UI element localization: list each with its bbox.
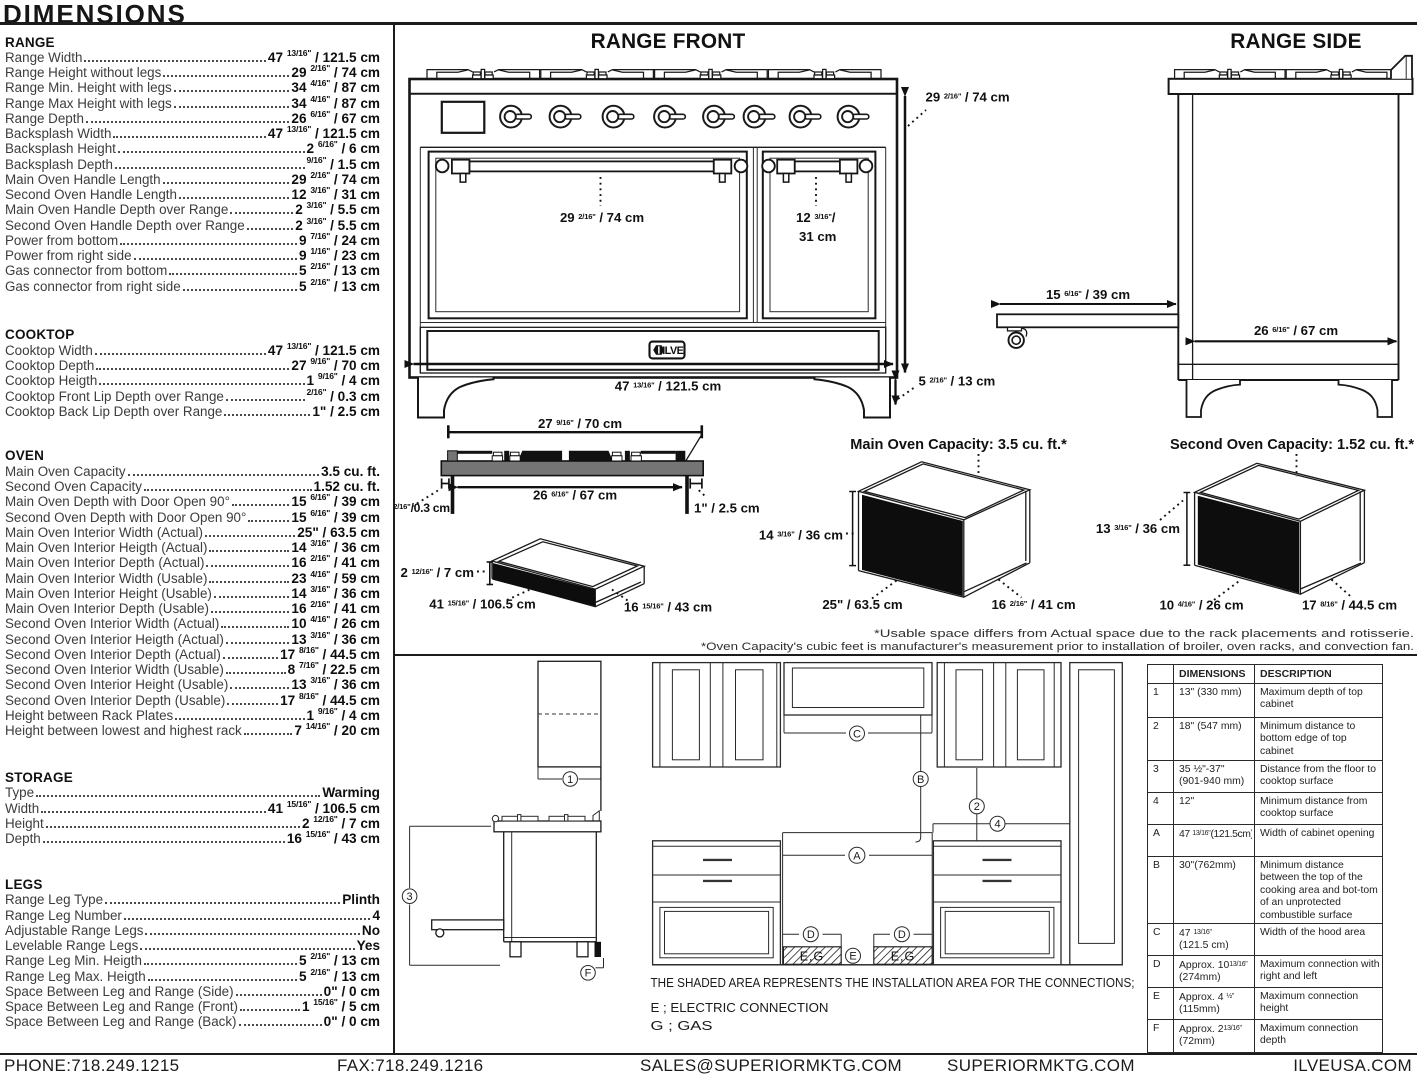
svg-text:25" / 63.5 cm: 25" / 63.5 cm (822, 597, 902, 612)
svg-text:47 13/16" / 121.5 cm: 47 13/16" / 121.5 cm (615, 379, 721, 394)
svg-text:1: 1 (567, 774, 573, 786)
svg-text:D: D (898, 929, 906, 941)
svg-text:2 12/16" / 7 cm: 2 12/16" / 7 cm (401, 565, 474, 580)
svg-text:26 6/16" / 67 cm: 26 6/16" / 67 cm (533, 488, 617, 503)
svg-text:29 2/16" / 74 cm: 29 2/16" / 74 cm (926, 90, 1010, 105)
svg-text:15 6/16" / 39 cm: 15 6/16" / 39 cm (1046, 287, 1130, 302)
svg-text:29 2/16" / 74 cm: 29 2/16" / 74 cm (560, 210, 644, 225)
svg-text:2: 2 (974, 801, 980, 813)
svg-text:5 2/16" / 13 cm: 5 2/16" / 13 cm (919, 374, 996, 389)
svg-text:4: 4 (994, 819, 1000, 831)
svg-text:RANGE SIDE: RANGE SIDE (1230, 30, 1361, 53)
svg-text:14 3/16" / 36 cm: 14 3/16" / 36 cm (759, 528, 843, 543)
svg-text:E,G: E,G (891, 949, 916, 963)
svg-text:17 8/16" / 44.5 cm: 17 8/16" / 44.5 cm (1302, 598, 1397, 613)
svg-text:D: D (807, 929, 815, 941)
svg-text:31 cm: 31 cm (799, 229, 836, 244)
svg-text:13 3/16" / 36 cm: 13 3/16" / 36 cm (1096, 521, 1180, 536)
svg-text:10 4/16" / 26 cm: 10 4/16" / 26 cm (1159, 598, 1243, 613)
svg-text:F: F (585, 968, 592, 980)
svg-text:Main Oven Capacity: 3.5 cu. ft: Main Oven Capacity: 3.5 cu. ft.* (850, 437, 1067, 453)
svg-text:ILVE: ILVE (662, 345, 683, 357)
svg-text:RANGE FRONT: RANGE FRONT (591, 30, 746, 53)
svg-text:16 2/16" / 41 cm: 16 2/16" / 41 cm (991, 597, 1075, 612)
svg-text:E ; ELECTRIC CONNECTION: E ; ELECTRIC CONNECTION (651, 1000, 829, 1015)
svg-text:E: E (849, 951, 856, 963)
svg-text:C: C (853, 728, 861, 740)
svg-text:1" / 2.5 cm: 1" / 2.5 cm (694, 501, 760, 516)
svg-text:41 15/16" / 106.5 cm: 41 15/16" / 106.5 cm (429, 597, 535, 612)
svg-text:G ; GAS: G ; GAS (651, 1018, 713, 1033)
svg-text:A: A (853, 850, 861, 862)
svg-text:2/16"/0.3 cm: 2/16"/0.3 cm (393, 501, 450, 515)
svg-text:12 3/16"/: 12 3/16"/ (796, 210, 836, 225)
svg-text:26 6/16" / 67 cm: 26 6/16" / 67 cm (1254, 323, 1338, 338)
svg-text:*Usable space differs from Act: *Usable space differs from Actual space … (874, 628, 1414, 640)
svg-text:*Oven Capacity's cubic feet is: *Oven Capacity's cubic feet is manufactu… (701, 641, 1414, 653)
svg-text:E,G: E,G (800, 949, 825, 963)
svg-text:Second Oven Capacity: 1.52 cu.: Second Oven Capacity: 1.52 cu. ft.* (1170, 437, 1414, 453)
svg-text:16 15/16" / 43 cm: 16 15/16" / 43 cm (624, 600, 712, 615)
svg-text:3: 3 (407, 891, 413, 903)
svg-text:B: B (917, 774, 924, 786)
svg-text:THE SHADED AREA REPRESENTS THE: THE SHADED AREA REPRESENTS THE INSTALLAT… (651, 975, 1135, 990)
svg-text:27 9/16" / 70 cm: 27 9/16" / 70 cm (538, 416, 622, 431)
